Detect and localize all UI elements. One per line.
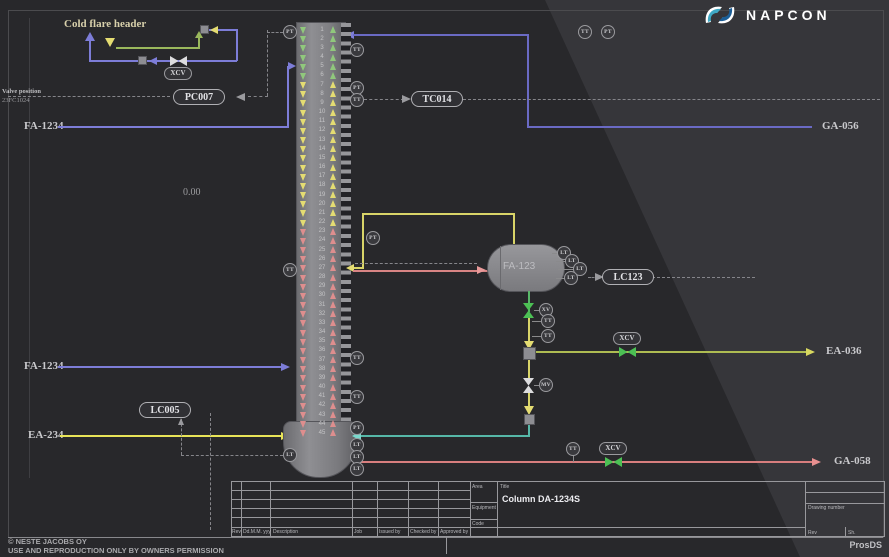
tray-number: 27	[312, 265, 332, 271]
tray-downflow-arrow	[300, 192, 306, 199]
arrow-fa1234-bottom	[281, 363, 290, 371]
junction-ea036	[523, 347, 536, 360]
tray-downflow-arrow	[300, 210, 306, 217]
tray-number: 23	[312, 228, 332, 234]
tb-right-col	[805, 481, 806, 537]
lc005-controller[interactable]: LC005	[139, 402, 191, 418]
tray-number: 40	[312, 384, 332, 390]
xcv-valve-label[interactable]: XCV	[164, 67, 192, 80]
stub-tt1	[532, 321, 541, 322]
tb-header-job: Job	[354, 529, 362, 535]
tray-number: 15	[312, 155, 332, 161]
line-drum-left-v	[362, 213, 364, 269]
arrow-flare-top-left	[210, 26, 218, 34]
line-fa1234-top	[58, 126, 289, 128]
tray-upflow-arrow	[330, 246, 336, 253]
tb-r1	[805, 492, 885, 493]
tt-instrument[interactable]: TT	[350, 390, 364, 404]
tray-downflow-arrow	[300, 412, 306, 419]
tt-instrument[interactable]: TT	[350, 93, 364, 107]
tray-upflow-arrow	[330, 118, 336, 125]
lt-instrument[interactable]: LT	[283, 448, 297, 462]
frame-right	[883, 10, 884, 538]
tray-number: 42	[312, 402, 332, 408]
tray-upflow-arrow	[330, 81, 336, 88]
tt-instrument[interactable]: TT	[283, 263, 297, 277]
tray-number: 5	[312, 63, 332, 69]
xcv-valve-ea036[interactable]	[619, 347, 636, 357]
tray-downflow-arrow	[300, 229, 306, 236]
tb-row3	[231, 508, 470, 509]
tt-instrument[interactable]: TT	[350, 43, 364, 57]
tb-row1	[231, 490, 470, 491]
tray-downflow-arrow	[300, 394, 306, 401]
arrow-to-flare	[85, 32, 95, 41]
napcon-logo: NAPCON	[702, 3, 831, 27]
stub-tt2	[532, 336, 541, 337]
tb-header-checked: Checked by	[410, 529, 436, 535]
tb-title-value: Column DA-1234S	[502, 494, 580, 504]
tray-downflow-arrow	[300, 339, 306, 346]
tray-number: 20	[312, 201, 332, 207]
signal-column-to-drum	[355, 263, 477, 264]
line-into-drum	[513, 213, 515, 245]
tb-row5	[231, 527, 805, 528]
tc014-controller[interactable]: TC014	[411, 91, 463, 107]
tray-downflow-arrow	[300, 247, 306, 254]
tray-downflow-arrow	[300, 155, 306, 162]
tray-number: 22	[312, 219, 332, 225]
tray-upflow-arrow	[330, 136, 336, 143]
tray-number: 18	[312, 182, 332, 188]
tray-number: 7	[312, 82, 332, 88]
tray-upflow-arrow	[330, 35, 336, 42]
tb-col4	[377, 481, 378, 537]
frame-left-inner	[29, 18, 30, 478]
tray-upflow-arrow	[330, 402, 336, 409]
pc007-controller[interactable]: PC007	[173, 89, 225, 105]
tray-upflow-arrow	[330, 356, 336, 363]
tray-number: 31	[312, 302, 332, 308]
tb-row4	[231, 517, 470, 518]
tb-equip-div	[470, 519, 498, 520]
tb-header-issued: Issued by	[379, 529, 400, 535]
tray-downflow-arrow	[300, 238, 306, 245]
line-ea036	[536, 351, 808, 353]
tb-code-label: Code	[472, 521, 484, 527]
tray-downflow-arrow	[300, 64, 306, 71]
tray-number: 45	[312, 430, 332, 436]
tb-header-description: Description	[273, 529, 298, 535]
tray-number: 25	[312, 247, 332, 253]
frame-center-tick	[446, 537, 447, 554]
tray-upflow-arrow	[330, 255, 336, 262]
tray-downflow-arrow	[300, 100, 306, 107]
lt-instrument[interactable]: LT	[564, 271, 578, 285]
tb-area-div	[470, 502, 498, 503]
tray-upflow-arrow	[330, 301, 336, 308]
xcv-valve-label[interactable]: XCV	[613, 332, 641, 345]
tray-downflow-arrow	[300, 128, 306, 135]
tray-number: 34	[312, 329, 332, 335]
tray-downflow-arrow	[300, 82, 306, 89]
line-fa1234-bottom	[58, 366, 282, 368]
tray-upflow-arrow	[330, 347, 336, 354]
tray-upflow-arrow	[330, 209, 336, 216]
line-teal-return	[356, 435, 530, 437]
tray-number: 1	[312, 27, 332, 33]
napcon-logo-text: NAPCON	[746, 7, 831, 23]
tray-downflow-arrow	[300, 357, 306, 364]
tb-equipment-label: Equipment	[472, 505, 496, 511]
tray-number: 39	[312, 375, 332, 381]
arrow-into-drum	[477, 266, 486, 274]
tray-downflow-arrow	[300, 119, 306, 126]
line-fa1234-top-riser	[287, 66, 289, 128]
tray-downflow-arrow	[300, 36, 306, 43]
tray-number: 43	[312, 412, 332, 418]
tray-downflow-arrow	[300, 174, 306, 181]
tray-upflow-arrow	[330, 99, 336, 106]
tt-instrument[interactable]: TT	[541, 314, 555, 328]
tray-upflow-arrow	[330, 411, 336, 418]
valve-position-tag: 23FC1024	[2, 97, 29, 104]
tray-number: 36	[312, 347, 332, 353]
tray-number: 21	[312, 210, 332, 216]
tray-number: 11	[312, 118, 332, 124]
tt-instrument[interactable]: TT	[566, 442, 580, 456]
tray-upflow-arrow	[330, 200, 336, 207]
value-annotation: 0.00	[183, 187, 201, 198]
tray-downflow-arrow	[300, 430, 306, 437]
line-vapor-to-drum	[353, 270, 488, 272]
tb-drawing-number-label: Drawing number	[808, 505, 845, 511]
line-drum-top-h	[362, 213, 515, 215]
tray-downflow-arrow	[300, 421, 306, 428]
line-into-column-27	[353, 267, 364, 269]
tb-area-label: Area	[472, 484, 483, 490]
signal-pc007-right	[248, 96, 268, 97]
tray-number: 16	[312, 164, 332, 170]
tray-downflow-arrow	[300, 366, 306, 373]
column-tray-ticks	[341, 23, 351, 423]
stub-tt-ga058	[573, 455, 574, 462]
copyright-note: © NESTE JACOBS OY USE AND REPRODUCTION O…	[8, 538, 224, 555]
stream-label-ea036: EA-036	[826, 345, 861, 357]
line-reflux-top	[353, 34, 529, 36]
tray-downflow-arrow	[300, 45, 306, 52]
tb-col6	[438, 481, 439, 537]
xv-valve[interactable]	[523, 303, 534, 318]
tray-number: 32	[312, 311, 332, 317]
prosds-flowsheet: NAPCON Cold flare header Valve position …	[0, 0, 889, 557]
tb-col5	[408, 481, 409, 537]
tray-upflow-arrow	[330, 274, 336, 281]
tray-upflow-arrow	[330, 264, 336, 271]
tb-rev-sh-div	[845, 527, 846, 537]
tray-downflow-arrow	[300, 137, 306, 144]
lt-instrument[interactable]: LT	[350, 462, 364, 476]
tray-upflow-arrow	[330, 429, 336, 436]
tray-upflow-arrow	[330, 319, 336, 326]
cold-flare-header-label: Cold flare header	[64, 18, 146, 30]
stream-label-ga056: GA-056	[822, 120, 859, 132]
copyright-line2: USE AND REPRODUCTION ONLY BY OWNERS PERM…	[8, 547, 224, 556]
line-mv-upper	[528, 360, 530, 378]
tray-upflow-arrow	[330, 365, 336, 372]
tray-downflow-arrow	[300, 330, 306, 337]
arrow-yellow-flare	[105, 38, 115, 47]
tray-number: 2	[312, 36, 332, 42]
tray-upflow-arrow	[330, 26, 336, 33]
tray-downflow-arrow	[300, 311, 306, 318]
xcv-valve-ga058[interactable]	[605, 457, 622, 467]
tray-number: 14	[312, 146, 332, 152]
tray-number: 33	[312, 320, 332, 326]
arrow-ga058	[812, 458, 821, 466]
tb-r2	[805, 503, 885, 504]
tray-upflow-arrow	[330, 292, 336, 299]
tb-col1	[241, 481, 242, 537]
stream-label-ga058: GA-058	[834, 455, 871, 467]
tt-instrument[interactable]: TT	[541, 329, 555, 343]
signal-lc005-down	[210, 413, 211, 530]
tray-upflow-arrow	[330, 54, 336, 61]
tray-number: 8	[312, 91, 332, 97]
tray-upflow-arrow	[330, 228, 336, 235]
tray-number: 41	[312, 393, 332, 399]
tray-upflow-arrow	[330, 219, 336, 226]
tray-number: 37	[312, 357, 332, 363]
arrow-signal-pc007	[236, 93, 245, 101]
arrow-signal-tc014	[402, 95, 411, 103]
tray-downflow-arrow	[300, 385, 306, 392]
line-flare-riser	[89, 40, 91, 61]
tb-sheet-label: Sh.	[848, 530, 856, 536]
tray-downflow-arrow	[300, 302, 306, 309]
tb-col7	[470, 481, 471, 537]
signal-lc123-right	[652, 277, 755, 278]
tray-upflow-arrow	[330, 374, 336, 381]
tray-downflow-arrow	[300, 284, 306, 291]
tray-downflow-arrow	[300, 183, 306, 190]
line-green-flare	[116, 47, 200, 49]
tray-upflow-arrow	[330, 283, 336, 290]
tray-upflow-arrow	[330, 173, 336, 180]
tray-number: 28	[312, 274, 332, 280]
line-flare-up	[236, 31, 238, 61]
signal-pt-stub	[267, 32, 283, 33]
pt-instrument[interactable]: PT	[283, 25, 297, 39]
tb-header-rev: Rev	[232, 529, 241, 535]
signal-lt-to-lc005	[181, 455, 283, 456]
tray-downflow-arrow	[300, 110, 306, 117]
background-sheen	[0, 0, 889, 557]
tray-upflow-arrow	[330, 420, 336, 427]
tray-downflow-arrow	[300, 55, 306, 62]
tray-number: 3	[312, 45, 332, 51]
drum-weld-line	[500, 246, 501, 290]
junction-reboil	[524, 414, 535, 425]
mv-instrument[interactable]: MV	[539, 378, 553, 392]
tb-header-date: Dd.M.M. yyy	[243, 529, 271, 535]
tray-number: 17	[312, 173, 332, 179]
tray-downflow-arrow	[300, 375, 306, 382]
tray-upflow-arrow	[330, 164, 336, 171]
tray-downflow-arrow	[300, 348, 306, 355]
tray-number: 19	[312, 192, 332, 198]
tb-row2	[231, 499, 470, 500]
tray-upflow-arrow	[330, 237, 336, 244]
tray-downflow-arrow	[300, 256, 306, 263]
napcon-logo-icon	[702, 3, 738, 27]
arrow-fa1234-top	[288, 62, 296, 70]
arrow-flare-left	[149, 57, 157, 65]
tray-upflow-arrow	[330, 145, 336, 152]
tray-downflow-arrow	[300, 220, 306, 227]
arrow-green-up	[195, 31, 203, 38]
tray-downflow-arrow	[300, 165, 306, 172]
signal-tt-to-tc014	[364, 99, 404, 100]
tray-downflow-arrow	[300, 27, 306, 34]
tray-downflow-arrow	[300, 91, 306, 98]
tray-number: 4	[312, 54, 332, 60]
tray-upflow-arrow	[330, 338, 336, 345]
tray-upflow-arrow	[330, 393, 336, 400]
tray-downflow-arrow	[300, 403, 306, 410]
tray-number: 38	[312, 366, 332, 372]
mv-valve[interactable]	[523, 378, 534, 393]
stream-label-ea234: EA-234	[28, 429, 63, 441]
xcv-valve-flare[interactable]	[170, 56, 187, 66]
tray-downflow-arrow	[300, 201, 306, 208]
line-reflux-down	[527, 34, 529, 128]
signal-pt-down	[267, 30, 268, 96]
tray-number: 26	[312, 256, 332, 262]
tb-col3	[352, 481, 353, 537]
tb-col8	[497, 481, 498, 537]
tray-upflow-arrow	[330, 90, 336, 97]
line-ga058	[356, 461, 818, 463]
tray-upflow-arrow	[330, 191, 336, 198]
tray-number: 44	[312, 421, 332, 427]
tb-header-approved: Approved by	[440, 529, 468, 535]
tray-upflow-arrow	[330, 109, 336, 116]
tray-downflow-arrow	[300, 73, 306, 80]
drum-label: FA-123	[503, 261, 535, 272]
tb-title-label: Title	[500, 484, 509, 490]
tray-downflow-arrow	[300, 146, 306, 153]
tray-upflow-arrow	[330, 127, 336, 134]
tray-downflow-arrow	[300, 293, 306, 300]
tt-instrument[interactable]: TT	[578, 25, 592, 39]
pt-instrument[interactable]: PT	[366, 231, 380, 245]
tray-upflow-arrow	[330, 182, 336, 189]
signal-tc014-right	[463, 99, 880, 100]
tray-number: 24	[312, 237, 332, 243]
pt-instrument[interactable]: PT	[350, 421, 364, 435]
lc123-controller[interactable]: LC123	[602, 269, 654, 285]
tb-rev-label: Rev	[808, 530, 817, 536]
tray-number: 13	[312, 137, 332, 143]
tray-upflow-arrow	[330, 310, 336, 317]
tray-upflow-arrow	[330, 384, 336, 391]
line-mv-lower	[528, 393, 530, 406]
tray-number: 12	[312, 127, 332, 133]
tray-downflow-arrow	[300, 275, 306, 282]
tray-number: 30	[312, 292, 332, 298]
tray-number: 10	[312, 109, 332, 115]
stub-lt3	[558, 269, 574, 270]
tray-downflow-arrow	[300, 320, 306, 327]
line-ea234	[60, 435, 282, 437]
tray-upflow-arrow	[330, 72, 336, 79]
pt-instrument[interactable]: PT	[601, 25, 615, 39]
tt-instrument[interactable]: TT	[350, 351, 364, 365]
tray-upflow-arrow	[330, 154, 336, 161]
xcv-valve-label[interactable]: XCV	[599, 442, 627, 455]
arrow-ea036	[806, 348, 815, 356]
arrow-signal-lc005	[178, 418, 184, 425]
prosds-brand: ProsDS	[800, 540, 882, 550]
tray-upflow-arrow	[330, 44, 336, 51]
tray-upflow-arrow	[330, 329, 336, 336]
junction-flare	[138, 56, 147, 65]
tray-number: 35	[312, 338, 332, 344]
tray-number: 6	[312, 72, 332, 78]
tray-upflow-arrow	[330, 63, 336, 70]
tray-number: 29	[312, 283, 332, 289]
tray-downflow-arrow	[300, 265, 306, 272]
signal-pc007-left	[8, 96, 170, 97]
tray-number: 9	[312, 100, 332, 106]
line-ga056	[527, 126, 812, 128]
line-flare-horizontal	[89, 60, 237, 62]
valve-position-label: Valve position	[2, 88, 41, 95]
